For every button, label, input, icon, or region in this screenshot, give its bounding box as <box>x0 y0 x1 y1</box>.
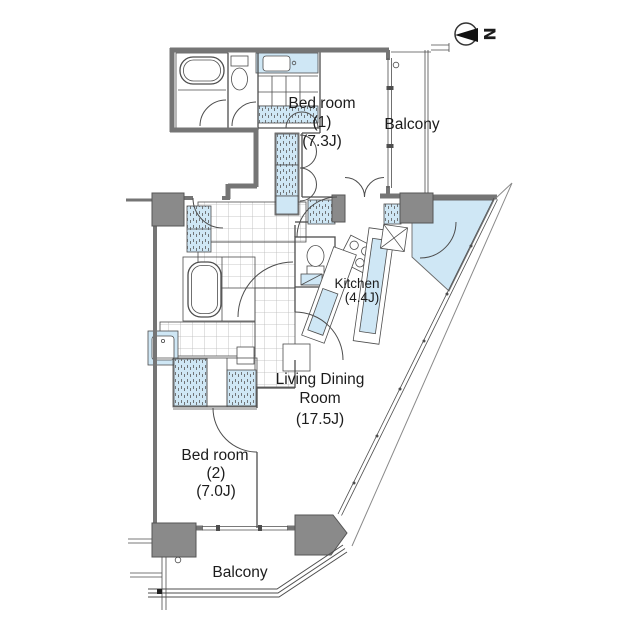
toilet-1 <box>231 56 248 90</box>
compass-icon: N <box>455 23 499 45</box>
bedroom1-number-label: (1) <box>313 114 332 131</box>
floor-plan-canvas: Bed room (1) (7.3J) Balcony Kitchen (4.4… <box>0 0 640 640</box>
refrigerator <box>380 224 407 251</box>
bedroom2-size-label: (7.0J) <box>196 483 236 500</box>
living-size-label: (17.5J) <box>296 411 344 428</box>
kitchen-name-label: Kitchen <box>334 276 379 291</box>
compass-north-letter: N <box>480 27 499 40</box>
living-name-line1-label: Living Dining <box>276 371 365 388</box>
kitchen-cabinet-row <box>308 200 401 224</box>
bedroom2-name-label: Bed room <box>181 447 248 464</box>
living-name-line2-label: Room <box>299 390 340 407</box>
balcony-bottom-label: Balcony <box>212 564 267 581</box>
bedroom1-name-label: Bed room <box>288 95 355 112</box>
floor-plan-svg: Bed room (1) (7.3J) Balcony Kitchen (4.4… <box>0 0 640 640</box>
bedroom2-number-label: (2) <box>207 465 226 482</box>
entrance-shoe-cabinet <box>187 206 211 252</box>
washroom-1 <box>256 53 318 123</box>
balcony-top-label: Balcony <box>384 116 439 133</box>
bedroom1-size-label: (7.3J) <box>302 133 342 150</box>
kitchen-size-label: (4.4J) <box>345 290 380 305</box>
bedroom2-closets <box>173 358 257 409</box>
